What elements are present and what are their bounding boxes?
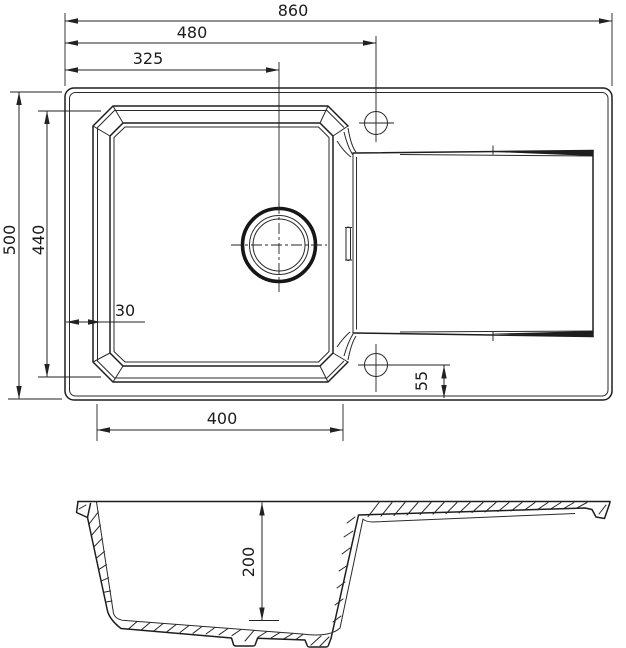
bowl-rim-outer (93, 106, 348, 382)
dim-label-bowl-outer-depth: 440 (29, 225, 48, 256)
sink-dimension-drawing: 860 480 325 500 440 30 400 55 (0, 0, 626, 648)
funnel-flare-bottom (337, 332, 356, 360)
section-view: 200 (77, 502, 611, 648)
sink-outer-edge (65, 88, 612, 400)
dim-label-bowl-width: 400 (207, 409, 238, 428)
section-hatching (79, 503, 606, 647)
faucet-hole-top (359, 112, 394, 135)
dim-label-overall-depth: 500 (0, 225, 19, 256)
dim-label-hole-offset: 55 (412, 371, 431, 391)
bowl-inner-edge (110, 123, 333, 366)
sink-inner-rim-edge (70, 93, 609, 397)
dim-label-overall-width: 860 (278, 1, 309, 20)
overflow-slot (346, 227, 351, 261)
dim-label-bowl-depth: 200 (239, 547, 258, 578)
bowl-corner-bevels (93, 106, 348, 382)
dim-label-bowl-offset: 30 (115, 301, 135, 320)
section-outer-profile (88, 502, 611, 648)
extension-lines-left (8, 92, 101, 399)
drainboard (345, 146, 593, 342)
bowl-rim-outer-2 (98, 111, 345, 379)
faucet-hole-bottom (358, 344, 450, 392)
dim-label-hole-centerline: 480 (177, 23, 208, 42)
drainboard-left-edge (353, 153, 357, 333)
section-left-lip (77, 502, 91, 518)
dim-label-drain-centerline: 325 (133, 49, 164, 68)
bowl-inner-edge-2 (114, 127, 329, 362)
top-view (65, 88, 612, 400)
drain (231, 203, 327, 292)
technical-drawing-sheet: 860 480 325 500 440 30 400 55 (0, 0, 626, 648)
